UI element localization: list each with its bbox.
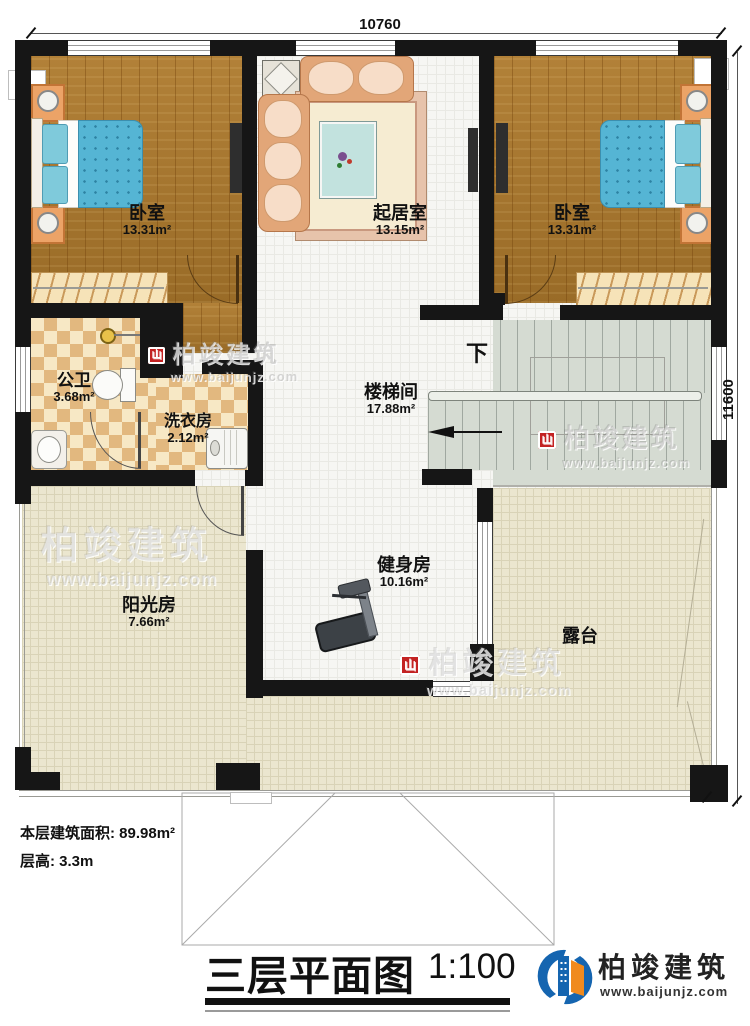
wall-top-2: [210, 40, 296, 56]
sofa-top-cushion: [358, 61, 404, 95]
wall-gym-bottom: [263, 680, 433, 696]
brand-name: 柏竣建筑: [598, 946, 730, 986]
bed-pillow: [675, 166, 701, 204]
room-label-gym: 健身房 10.16m²: [349, 556, 459, 589]
stairs-direction-arrow: [428, 426, 454, 438]
room-label-bedroom-left: 卧室 13.31m²: [92, 204, 202, 237]
wall-stairs-bottom: [422, 469, 472, 485]
stairs-down-label: 下: [460, 342, 494, 365]
door-bedroom-left-leaf: [236, 255, 239, 303]
wall-bedroom-right-bottom: [560, 305, 727, 320]
room-area: 3.68m²: [34, 390, 114, 404]
room-area: 10.16m²: [349, 575, 459, 589]
post-bottom-middle-outline: [230, 792, 272, 804]
floor-height-text: 层高: 3.3m: [20, 853, 93, 870]
brand-url-text: www.baijunjz.com: [600, 984, 728, 999]
room-area: 13.15m²: [345, 223, 455, 237]
bed-pillow: [42, 124, 68, 164]
dimension-top-value: 10760: [330, 16, 430, 33]
drawing-scale-text: 1:100: [428, 947, 516, 986]
coffee-table-flowers-icon: [338, 152, 347, 161]
drawing-title-text: 三层平面图: [205, 953, 415, 999]
room-name: 卧室: [517, 204, 627, 223]
wall-gym-right-upper: [477, 488, 493, 522]
room-label-terrace: 露台: [530, 627, 630, 646]
wall-bath-laundry-bottom: [15, 470, 195, 486]
wardrobe-rod: [33, 287, 164, 289]
dimension-text: 11600: [720, 380, 737, 421]
sunroom-floor: [22, 486, 246, 790]
wall-top-1: [15, 40, 68, 56]
bed-quilt: [78, 120, 143, 208]
wall-stub-bedroom-right-door: [487, 293, 505, 305]
wardrobe-rod: [578, 287, 708, 289]
door-bedroom-right-leaf: [505, 255, 508, 303]
wall-gym-corner-post: [470, 644, 494, 681]
room-label-sunroom: 阳光房 7.66m²: [94, 596, 204, 629]
window-top-living: [296, 40, 395, 56]
tv-bedroom-left: [230, 123, 242, 193]
wall-bedroom-left-living: [242, 56, 257, 353]
outdoor-bottom-band-floor: [246, 696, 493, 790]
room-label-stairwell: 楼梯间 17.88m²: [336, 383, 446, 416]
corner-post-bottom-left-h: [15, 772, 60, 790]
wardrobe: [576, 272, 712, 306]
wall-bedroom-right-living: [479, 56, 494, 310]
window-top-bedroom-right: [536, 40, 678, 56]
sunroom-glass-wall-left: [19, 486, 25, 790]
room-name: 露台: [530, 627, 630, 646]
floor-area-text: 本层建筑面积: 89.98m²: [20, 825, 175, 842]
stairs-terrace-divider: [493, 485, 711, 487]
coffee-table: [320, 122, 376, 198]
wall-bath-laundry-bottom-2: [245, 470, 263, 486]
terrace-glass-wall-right: [711, 488, 717, 790]
bed-pillow: [675, 124, 701, 164]
nightstand-lamp-icon: [37, 90, 59, 112]
sofa-left-cushion: [264, 100, 302, 138]
sink-basin: [37, 436, 61, 463]
bed-pillow: [42, 166, 68, 204]
room-area: 7.66m²: [94, 615, 204, 629]
room-name: 起居室: [345, 204, 455, 223]
wall-top-4: [678, 40, 727, 56]
drawing-title: 三层平面图: [205, 942, 420, 1002]
room-name: 洗衣房: [138, 414, 238, 431]
dimension-line-top: [30, 33, 722, 34]
nightstand-lamp-icon: [686, 90, 708, 112]
sofa-left-cushion: [264, 184, 302, 222]
corner-post-bottom-right: [690, 765, 728, 802]
nightstand-lamp-icon: [37, 212, 59, 234]
bed-quilt: [600, 120, 665, 208]
room-label-bedroom-right: 卧室 13.31m²: [517, 204, 627, 237]
brand-url: www.baijunjz.com: [600, 984, 728, 999]
room-area: 2.12m²: [138, 431, 238, 445]
lower-roof-outline: [180, 790, 558, 948]
shower-head-icon: [100, 328, 116, 344]
post-bottom-middle: [216, 763, 260, 790]
sunroom-corner-post-left: [15, 486, 31, 504]
window-top-bedroom-left: [68, 40, 210, 56]
wall-right-lower: [711, 440, 727, 488]
stairs-down-text: 下: [466, 341, 488, 366]
shower-arm: [114, 334, 142, 336]
floor-height-note: 层高: 3.3m: [20, 850, 93, 871]
dimension-text: 10760: [359, 16, 401, 33]
window-gym-bottom: [433, 681, 470, 697]
room-name: 健身房: [349, 556, 459, 575]
room-name: 公卫: [34, 372, 114, 390]
wall-bedroom-left-bottom: [15, 303, 140, 318]
room-label-living: 起居室 13.15m²: [345, 204, 455, 237]
brand-logo-icon: [536, 946, 594, 1008]
room-area: 13.31m²: [92, 223, 202, 237]
brand-name-text: 柏竣建筑: [598, 952, 730, 983]
drawing-scale: 1:100: [428, 947, 516, 987]
stairs-direction-tail: [454, 431, 502, 433]
window-left-bathroom: [15, 347, 31, 412]
wall-laundry-right: [248, 360, 263, 486]
wall-bathroom-top-chunk: [140, 303, 183, 378]
window-gym-terrace: [477, 522, 493, 644]
room-name: 阳光房: [94, 596, 204, 615]
wall-sunroom-gym: [246, 550, 263, 698]
room-label-bathroom: 公卫 3.68m²: [34, 372, 114, 403]
stairs-center-rail: [428, 391, 702, 401]
title-underline-thin: [205, 1010, 510, 1012]
tv-bedroom-right: [496, 123, 508, 193]
room-area: 13.31m²: [517, 223, 627, 237]
wardrobe: [31, 272, 168, 306]
sofa-left-cushion: [264, 142, 302, 180]
floor-plan-canvas: 下: [0, 0, 750, 1026]
sofa-top-cushion: [308, 61, 354, 95]
wall-right-upper: [711, 56, 727, 347]
nightstand-lamp-icon: [686, 212, 708, 234]
floor-area-note: 本层建筑面积: 89.98m²: [20, 822, 175, 843]
bedroom-left-door-passage-floor: [183, 303, 242, 353]
wall-top-3: [395, 40, 536, 56]
room-name: 卧室: [92, 204, 202, 223]
room-name: 楼梯间: [336, 383, 446, 402]
wall-stairs-top-left-seg: [420, 305, 503, 320]
room-area: 17.88m²: [336, 402, 446, 416]
dimension-right-value: 11600: [720, 360, 738, 440]
room-label-laundry: 洗衣房 2.12m²: [138, 414, 238, 444]
door-sunroom-leaf: [241, 486, 244, 535]
title-underline-thick: [205, 998, 510, 1005]
tv-living-right: [468, 128, 478, 192]
